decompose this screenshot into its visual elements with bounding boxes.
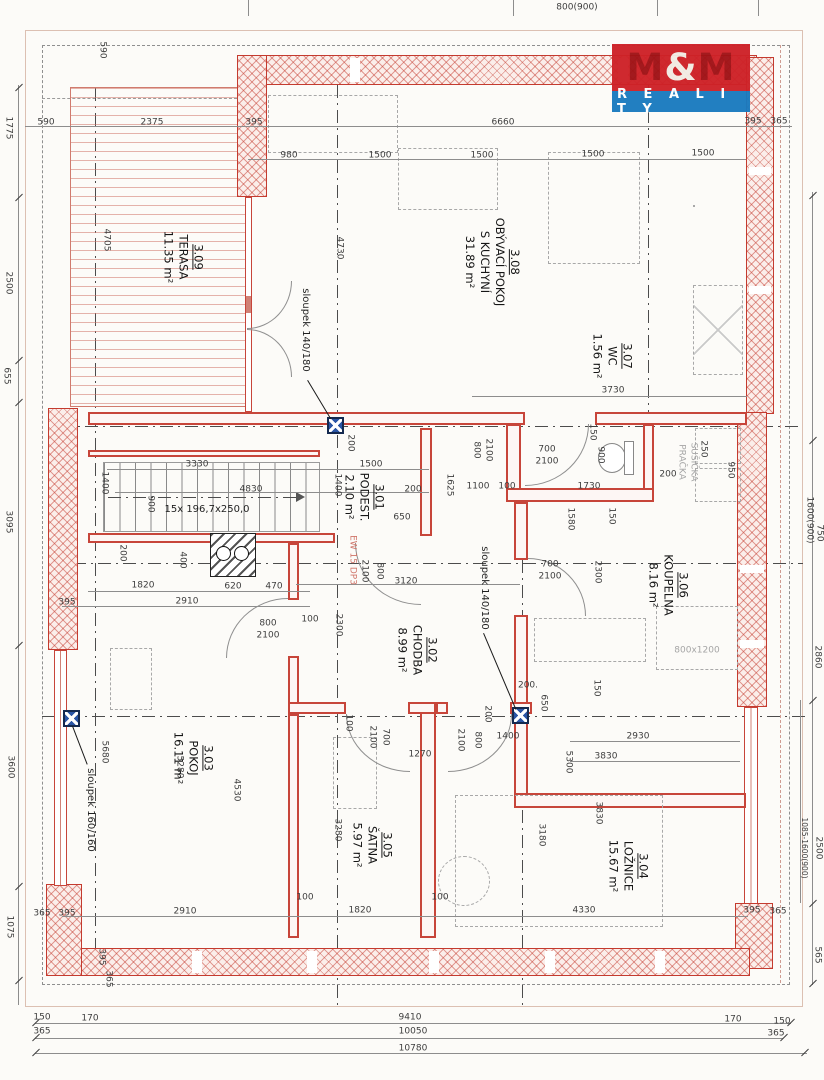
dimension-label: 2100 xyxy=(257,632,280,641)
dimension-label: 4530 xyxy=(232,779,241,802)
dimension-label: 2910 xyxy=(174,908,197,917)
dimension-label: PRAČKA xyxy=(677,444,686,480)
dimension-label: 3180 xyxy=(537,824,546,847)
dimension-label: 1500 xyxy=(471,152,494,161)
logo-letter-m: M xyxy=(627,46,665,89)
dimension-label: 3120 xyxy=(395,578,418,587)
room-label-3.01: 3.01PODEST.2.10 m² xyxy=(342,473,387,522)
dimension-label: 2300 xyxy=(593,561,602,584)
room-area: 15.67 m² xyxy=(606,840,621,892)
room-name: LOŽNICE xyxy=(621,840,636,892)
room-area: 1.56 m² xyxy=(590,333,605,378)
dimension-label: 1400 xyxy=(100,472,109,495)
floor-plan: 800(900)59023753956660395365980150015001… xyxy=(0,0,824,1080)
dimension-label: 4830 xyxy=(240,486,263,495)
dimension-label: 395 xyxy=(744,118,761,127)
dimension-label: 1500 xyxy=(582,151,605,160)
dimension-label: 655 xyxy=(2,367,11,384)
dimension-label: 200 xyxy=(346,434,355,451)
dimension-label: 2930 xyxy=(627,733,650,742)
dimension-label: 400 xyxy=(178,551,187,568)
dimension-label: 5300 xyxy=(564,751,573,774)
dimension-label: 1600(900) xyxy=(805,496,814,543)
dimension-label: 365 xyxy=(33,910,50,919)
room-number: 3.05 xyxy=(379,822,394,867)
dimension-label: 1075 xyxy=(5,916,14,939)
dimension-label: 2500 xyxy=(814,837,823,860)
dimension-label: 950 xyxy=(726,461,735,478)
labels-layer: 800(900)59023753956660395365980150015001… xyxy=(0,0,824,1080)
dimension-label: 3280 xyxy=(333,819,342,842)
dimension-label: 2100 xyxy=(539,573,562,582)
dimension-label: 200 xyxy=(118,544,127,561)
room-label-3.08: 3.08OBÝVACÍ POKOJS KUCHYNÍ31.89 m² xyxy=(462,218,522,307)
dimension-label: 3730 xyxy=(602,387,625,396)
dimension-label: 9410 xyxy=(399,1014,422,1023)
dimension-label: 6660 xyxy=(492,119,515,128)
room-number: 3.06 xyxy=(675,554,690,615)
dimension-label: 650 xyxy=(393,514,410,523)
dimension-label: 4730 xyxy=(335,237,344,260)
dimension-label: 365 xyxy=(769,908,786,917)
dimension-label: 800 xyxy=(375,562,384,579)
dimension-label: 100 xyxy=(344,714,353,731)
dimension-label: 3830 xyxy=(595,753,618,762)
dimension-label: 250 xyxy=(699,440,708,457)
annotation-label: 15x 196,7x250,0 xyxy=(165,505,250,515)
room-label-3.05: 3.05ŠATNA5.97 m² xyxy=(350,822,395,867)
dimension-label: 800x1200 xyxy=(674,647,719,656)
mm-reality-logo: M&M xyxy=(612,44,750,91)
dimension-label: 3095 xyxy=(4,511,13,534)
dimension-label: 365 xyxy=(770,118,787,127)
room-name: WC xyxy=(605,333,620,378)
dimension-label: 395 xyxy=(58,599,75,608)
room-number: 3.08 xyxy=(507,218,522,307)
room-label-3.02: 3.02CHODBA8.99 m² xyxy=(395,625,440,675)
dimension-label: 1820 xyxy=(132,582,155,591)
dimension-label: 100 xyxy=(301,616,318,625)
dimension-label: 200 xyxy=(659,471,676,480)
dimension-label: 800 xyxy=(472,441,481,458)
dimension-label: 2860 xyxy=(813,646,822,669)
dimension-label: 700 xyxy=(541,561,558,570)
dimension-label: 1820 xyxy=(349,907,372,916)
dimension-label: 800 xyxy=(473,731,482,748)
dimension-label: 100 xyxy=(498,483,515,492)
logo-reality-text: R E A L I T Y xyxy=(617,87,750,117)
dimension-label: 3330 xyxy=(186,461,209,470)
annotation-label: sloupek 140/180 xyxy=(300,288,310,371)
dimension-label: 2100 xyxy=(360,560,369,583)
dimension-label: 200. xyxy=(518,682,538,691)
room-number: 3.02 xyxy=(424,625,439,675)
dimension-label: 1270 xyxy=(409,751,432,760)
dimension-label: 565 xyxy=(813,946,822,963)
dimension-label: 170 xyxy=(724,1016,741,1025)
room-name: ŠATNA xyxy=(365,822,380,867)
dimension-label: 100 xyxy=(431,894,448,903)
dimension-label: 1500 xyxy=(369,152,392,161)
dimension-label: 150 xyxy=(607,507,616,524)
dimension-label: 2100 xyxy=(368,726,377,749)
dimension-label: 395 xyxy=(97,948,106,965)
dimension-label: 200 xyxy=(483,705,492,722)
dimension-label: 4705 xyxy=(102,229,111,252)
dimension-label: 100 xyxy=(296,894,313,903)
room-area: 2.10 m² xyxy=(342,473,357,522)
dimension-label: 1085-1600(900) xyxy=(800,817,808,878)
dimension-label: 1730 xyxy=(578,483,601,492)
room-area: 11.35 m² xyxy=(161,231,176,283)
room-number: 3.03 xyxy=(200,732,215,784)
dimension-label: 2100 xyxy=(536,458,559,467)
dimension-label: 650 xyxy=(539,694,548,711)
room-number: 3.07 xyxy=(619,333,634,378)
dimension-label: 2910 xyxy=(176,598,199,607)
dimension-label: 395 xyxy=(58,910,75,919)
dimension-label: 900 xyxy=(596,446,605,463)
dimension-label: 4330 xyxy=(573,907,596,916)
room-area: 8.16 m² xyxy=(646,554,661,615)
dimension-label: 395 xyxy=(245,119,262,128)
dimension-label: 365 xyxy=(104,970,113,987)
dimension-label: 3830 xyxy=(594,802,603,825)
dimension-label: 2300 xyxy=(334,614,343,637)
room-label-3.03: 3.03POKOJ16.11 m² xyxy=(171,732,216,784)
dimension-label: 980 xyxy=(280,152,297,161)
dimension-label: 150 xyxy=(33,1014,50,1023)
dimension-label: SUŠIČKA xyxy=(689,443,698,482)
dimension-label: 3600 xyxy=(6,756,15,779)
dimension-label: 750 xyxy=(815,524,824,541)
dimension-label: 10780 xyxy=(399,1045,428,1054)
dimension-label: 150 xyxy=(592,679,601,696)
dimension-label: 1580 xyxy=(566,508,575,531)
dimension-label: 700 xyxy=(538,446,555,455)
room-label-3.07: 3.07WC1.56 m² xyxy=(590,333,635,378)
dimension-label: 800(900) xyxy=(556,4,597,13)
dimension-label: 365 xyxy=(767,1030,784,1039)
room-number: 3.01 xyxy=(371,473,386,522)
dimension-label: 200 xyxy=(404,486,421,495)
room-name: PODEST. xyxy=(357,473,372,522)
room-name: POKOJ xyxy=(186,732,201,784)
dimension-label: 1500 xyxy=(360,461,383,470)
room-name: TERASA xyxy=(176,231,191,283)
dimension-label: 170 xyxy=(81,1015,98,1024)
dimension-label: 900 xyxy=(146,495,155,512)
annotation-label: sloupek 140/180 xyxy=(479,546,489,629)
dimension-label: 800 xyxy=(259,620,276,629)
dimension-label: 2100 xyxy=(456,729,465,752)
room-label-3.04: 3.04LOŽNICE15.67 m² xyxy=(606,840,651,892)
room-area: 31.89 m² xyxy=(462,218,477,307)
room-name: OBÝVACÍ POKOJ xyxy=(492,218,507,307)
dimension-label: 2100 xyxy=(484,439,493,462)
logo-ampersand: & xyxy=(664,46,697,89)
room-area: 16.11 m² xyxy=(171,732,186,784)
dimension-label: 1400 xyxy=(333,474,342,497)
dimension-label: EW 15 DP3 xyxy=(348,535,357,585)
dimension-label: 620 xyxy=(224,583,241,592)
dimension-label: 1500 xyxy=(692,150,715,159)
room-number: 3.09 xyxy=(190,231,205,283)
room-label-3.06: 3.06KOUPELNA8.16 m² xyxy=(646,554,691,615)
annotation-label: sloupek 160/160 xyxy=(85,768,95,851)
room-name: S KUCHYNÍ xyxy=(477,218,492,307)
dimension-label: 150 xyxy=(773,1018,790,1027)
room-name: CHODBA xyxy=(410,625,425,675)
room-label-3.09: 3.09TERASA11.35 m² xyxy=(161,231,206,283)
room-area: 8.99 m² xyxy=(395,625,410,675)
dimension-label: 395 xyxy=(743,907,760,916)
logo-letter-m: M xyxy=(698,46,736,89)
dimension-label: 2500 xyxy=(4,272,13,295)
dimension-label: 1400 xyxy=(497,733,520,742)
dimension-label: 590 xyxy=(98,41,107,58)
dimension-label: 5680 xyxy=(100,741,109,764)
room-number: 3.04 xyxy=(635,840,650,892)
dimension-label: 150 xyxy=(588,423,597,440)
dimension-label: 2375 xyxy=(141,119,164,128)
dimension-label: 700 xyxy=(381,728,390,745)
dimension-label: 470 xyxy=(265,583,282,592)
room-area: 5.97 m² xyxy=(350,822,365,867)
mm-reality-logo-band: R E A L I T Y xyxy=(612,91,750,112)
dimension-label: 10050 xyxy=(399,1028,428,1037)
dimension-label: 365 xyxy=(33,1028,50,1037)
room-name: KOUPELNA xyxy=(661,554,676,615)
dimension-label: 1100 xyxy=(467,483,490,492)
dimension-label: 1625 xyxy=(445,474,454,497)
dimension-label: 1775 xyxy=(4,117,13,140)
dimension-label: 590 xyxy=(37,119,54,128)
